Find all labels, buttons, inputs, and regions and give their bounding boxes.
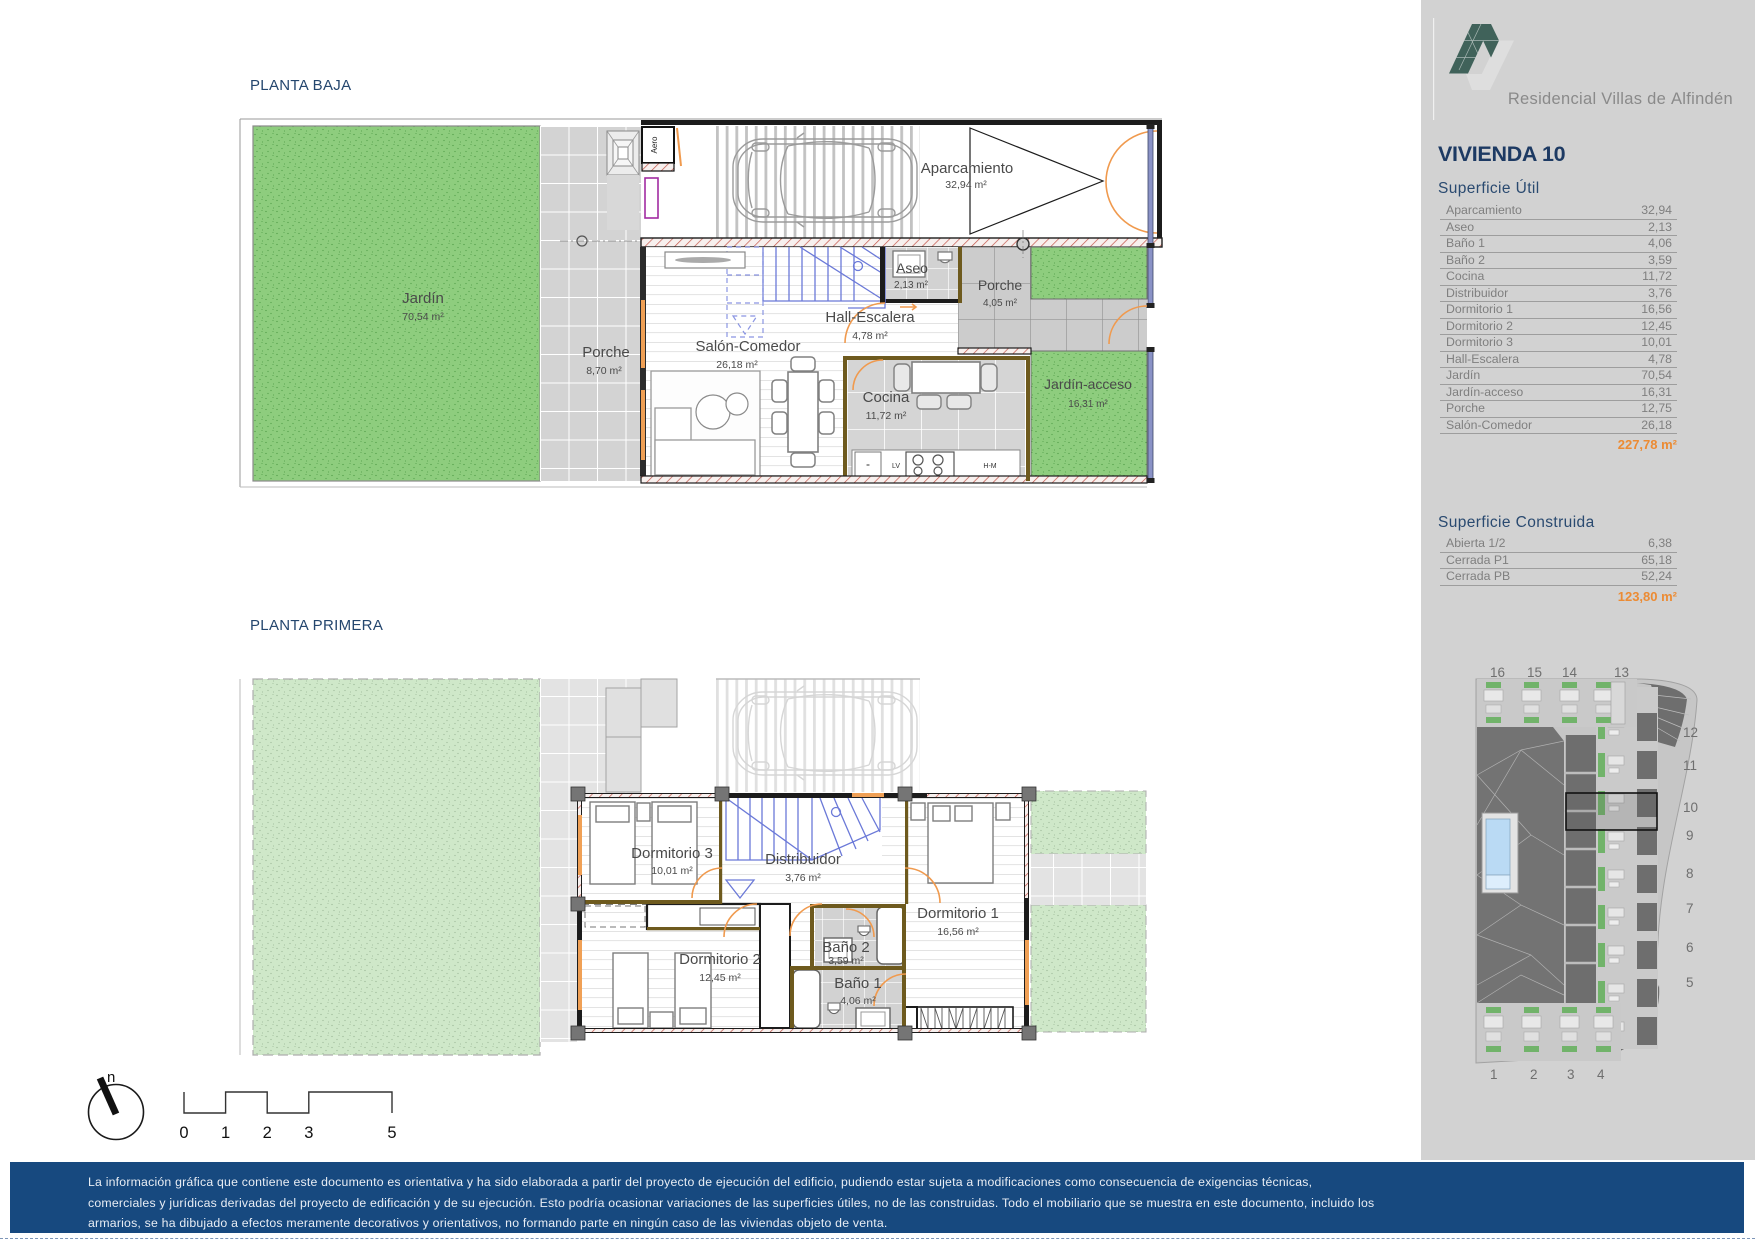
svg-text:Distribuidor: Distribuidor	[765, 851, 841, 868]
svg-text:3,76 m²: 3,76 m²	[785, 872, 821, 884]
svg-text:Aero: Aero	[650, 136, 659, 153]
svg-text:Dormitorio 2: Dormitorio 2	[679, 951, 761, 968]
svg-text:3,59 m²: 3,59 m²	[828, 955, 864, 967]
svg-text:Salón-Comedor: Salón-Comedor	[695, 338, 800, 355]
svg-text:LV: LV	[892, 463, 900, 470]
svg-text:13: 13	[1614, 665, 1629, 680]
svg-text:11,72 m²: 11,72 m²	[866, 410, 907, 422]
svg-text:70,54 m²: 70,54 m²	[402, 311, 444, 323]
svg-text:16: 16	[1490, 665, 1505, 680]
svg-text:0: 0	[179, 1124, 188, 1142]
svg-text:8: 8	[1686, 866, 1694, 881]
svg-text:5: 5	[387, 1124, 396, 1142]
svg-text:14: 14	[1562, 665, 1578, 680]
svg-text:12,45 m²: 12,45 m²	[699, 972, 741, 984]
svg-text:n: n	[107, 1069, 115, 1086]
svg-text:6: 6	[1686, 940, 1694, 955]
svg-text:16,56 m²: 16,56 m²	[937, 926, 979, 938]
svg-text:=: =	[866, 463, 870, 469]
svg-text:4,78 m²: 4,78 m²	[852, 330, 888, 342]
svg-text:2: 2	[1530, 1067, 1538, 1082]
svg-text:3: 3	[304, 1124, 313, 1142]
svg-text:26,18 m²: 26,18 m²	[716, 359, 758, 371]
svg-text:10: 10	[1683, 800, 1698, 815]
svg-text:11: 11	[1683, 758, 1697, 773]
svg-text:1: 1	[221, 1124, 230, 1142]
svg-text:Porche: Porche	[978, 277, 1023, 293]
svg-text:10,01 m²: 10,01 m²	[651, 865, 693, 877]
svg-text:9: 9	[1686, 828, 1694, 843]
svg-text:7: 7	[1686, 901, 1694, 916]
svg-text:Dormitorio 1: Dormitorio 1	[917, 905, 999, 922]
svg-text:Cocina: Cocina	[863, 389, 910, 406]
svg-text:Dormitorio 3: Dormitorio 3	[631, 845, 713, 862]
svg-text:Porche: Porche	[582, 344, 630, 361]
svg-text:Aparcamiento: Aparcamiento	[921, 160, 1014, 177]
svg-text:4: 4	[1597, 1067, 1605, 1082]
svg-text:H-M: H-M	[983, 463, 996, 470]
svg-text:1: 1	[1490, 1067, 1498, 1082]
svg-text:32,94 m²: 32,94 m²	[945, 179, 987, 191]
svg-text:Baño 2: Baño 2	[822, 939, 870, 956]
svg-text:2: 2	[263, 1124, 272, 1142]
svg-text:2,13 m²: 2,13 m²	[894, 280, 929, 291]
svg-text:Jardín-acceso: Jardín-acceso	[1044, 376, 1132, 392]
svg-text:Aseo: Aseo	[896, 260, 928, 276]
svg-text:4,06 m²: 4,06 m²	[840, 995, 876, 1007]
svg-text:Jardín: Jardín	[402, 290, 444, 307]
svg-text:Hall-Escalera: Hall-Escalera	[825, 309, 915, 326]
svg-text:15: 15	[1527, 665, 1542, 680]
svg-text:16,31 m²: 16,31 m²	[1068, 399, 1108, 410]
svg-text:Baño 1: Baño 1	[834, 975, 882, 992]
svg-text:12: 12	[1683, 725, 1698, 740]
svg-text:4,05 m²: 4,05 m²	[983, 298, 1018, 309]
svg-text:3: 3	[1567, 1067, 1575, 1082]
svg-text:8,70 m²: 8,70 m²	[586, 365, 622, 377]
svg-text:5: 5	[1686, 975, 1694, 990]
